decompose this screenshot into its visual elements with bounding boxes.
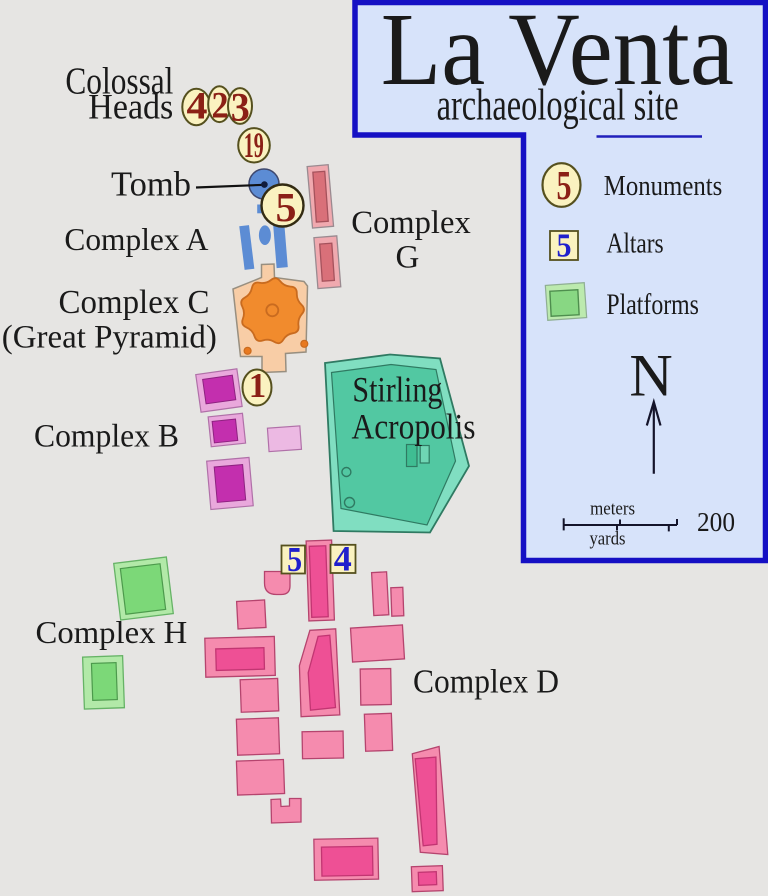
svg-text:archaeological site: archaeological site — [437, 81, 679, 130]
svg-text:200: 200 — [697, 506, 735, 537]
svg-text:meters: meters — [590, 499, 635, 520]
svg-text:Altars: Altars — [606, 229, 663, 260]
svg-text:N: N — [629, 343, 672, 409]
svg-text:5: 5 — [557, 162, 572, 208]
svg-text:3: 3 — [231, 84, 250, 129]
svg-text:Monuments: Monuments — [604, 171, 723, 202]
svg-text:19: 19 — [244, 125, 264, 165]
svg-text:4: 4 — [334, 539, 352, 579]
svg-text:2: 2 — [212, 86, 229, 127]
svg-text:1: 1 — [249, 366, 267, 405]
svg-text:Complex A: Complex A — [64, 221, 208, 257]
svg-text:Complex D: Complex D — [413, 664, 559, 701]
svg-text:5: 5 — [557, 228, 572, 265]
svg-text:Complex H: Complex H — [36, 614, 188, 650]
svg-text:yards: yards — [590, 529, 626, 550]
svg-text:Complex C: Complex C — [59, 284, 210, 321]
svg-text:Acropolis: Acropolis — [352, 407, 476, 447]
svg-text:Platforms: Platforms — [606, 288, 699, 321]
svg-text:Tomb: Tomb — [111, 165, 191, 204]
svg-text:Complex B: Complex B — [34, 419, 179, 455]
svg-text:Stirling: Stirling — [352, 370, 442, 410]
svg-text:(Great Pyramid): (Great Pyramid) — [2, 320, 217, 356]
svg-text:4: 4 — [187, 85, 208, 128]
svg-text:G: G — [395, 239, 419, 275]
svg-text:5: 5 — [287, 540, 302, 579]
svg-text:Complex: Complex — [351, 205, 471, 241]
svg-text:5: 5 — [276, 184, 297, 230]
svg-text:Heads: Heads — [88, 86, 173, 126]
